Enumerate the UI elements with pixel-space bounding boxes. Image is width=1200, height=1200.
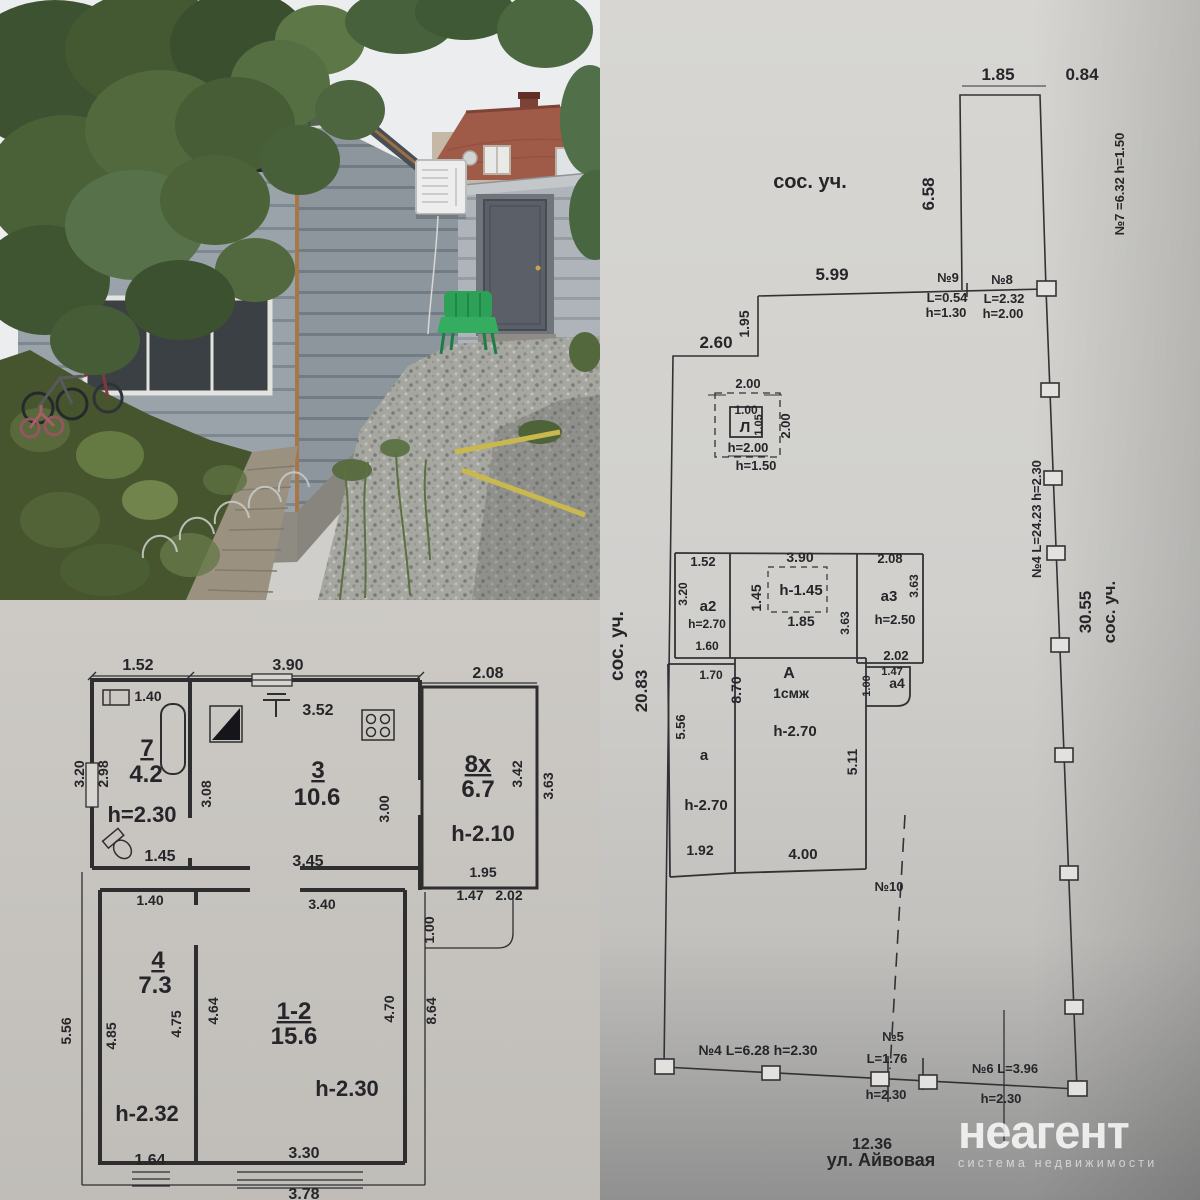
plan-label: h-2.30	[315, 1076, 379, 1101]
plan-label: a	[700, 747, 709, 764]
plan-label: 15.6	[271, 1023, 318, 1050]
door-handle	[536, 266, 541, 271]
plan-label: 3.42	[509, 760, 525, 787]
plan-label: h-2.70	[684, 797, 727, 814]
plan-label: №9	[937, 270, 959, 285]
plan-label: 3.08	[198, 780, 214, 807]
plan-label: 4.00	[788, 846, 817, 863]
plan-label: №8	[991, 272, 1013, 287]
watermark-tagline: система недвижимости	[958, 1157, 1194, 1170]
plan-label: h=2.00	[983, 306, 1024, 321]
plan-label: h=1.50	[736, 458, 777, 473]
plan-label: 3.78	[288, 1186, 319, 1200]
plan-label: 4.64	[205, 997, 221, 1024]
plan-label: №5	[882, 1029, 904, 1044]
plan-label: 5.99	[815, 265, 848, 284]
plan-label: 4.75	[168, 1010, 184, 1037]
plan-label: 2.98	[95, 760, 111, 787]
plan-label: L=1.76	[867, 1051, 908, 1066]
plan-label: 1.52	[690, 554, 715, 569]
plan-label: 1.00	[861, 675, 873, 696]
plan-label: 4.70	[381, 995, 397, 1022]
plan-label: ул. Айвовая	[827, 1150, 935, 1170]
room-number-label: 4	[151, 947, 165, 974]
plan-label: a2	[700, 598, 717, 615]
plan-label: 2.08	[472, 665, 503, 682]
plan-label: 1.95	[469, 864, 496, 880]
plan-label: 8.70	[728, 676, 744, 703]
plan-label: 3.63	[540, 772, 556, 799]
plan-label: h=2.30	[866, 1087, 907, 1102]
plan-label: 1.64	[134, 1152, 165, 1169]
plan-label: 8.64	[423, 997, 439, 1024]
plan-label: 1.45	[748, 584, 764, 611]
room-number-label: 3	[311, 757, 324, 784]
plan-label: 2.60	[699, 333, 732, 352]
plan-label: 3.63	[838, 611, 852, 635]
plan-label: 1.00	[421, 916, 437, 943]
plan-label: №7 =6.32 h=1.50	[1112, 133, 1127, 236]
plan-label: 1.40	[136, 892, 163, 908]
plan-label: L=0.54	[927, 290, 969, 305]
plan-label: 5.56	[673, 714, 688, 739]
plan-label: h-2.10	[451, 821, 515, 846]
plan-label: 2.02	[883, 648, 908, 663]
plan-label: a4	[889, 675, 905, 691]
plan-label: 6.58	[919, 177, 938, 210]
plan-label: h-2.32	[115, 1101, 179, 1126]
site-plan-drawing: сос. уч.1.850.846.58№7 =6.32 h=1.505.99№…	[600, 0, 1200, 1200]
plan-label: 3.30	[288, 1145, 319, 1162]
plan-label: 1.92	[686, 842, 713, 858]
plan-label: 4.2	[129, 761, 162, 788]
plan-label: 1.95	[736, 310, 752, 337]
plan-label: 0.84	[1065, 65, 1099, 84]
room-number-label: 7	[140, 735, 153, 762]
floor-plan: 1.523.902.081.403.523.202.9874.2h=2.301.…	[0, 600, 600, 1200]
room-number-label: 8x	[465, 751, 492, 778]
plan-label: h=2.00	[728, 440, 769, 455]
plan-label: А	[783, 665, 795, 682]
plan-label: h-2.70	[773, 723, 816, 740]
plan-label: h=2.70	[688, 617, 726, 631]
watermark-brand: неагент	[958, 1108, 1194, 1155]
plan-label: 3.90	[272, 657, 303, 674]
plan-label: 1.85	[981, 65, 1014, 84]
plan-label: 2.02	[495, 887, 522, 903]
plan-label: 1.70	[699, 668, 723, 682]
plan-label: 30.55	[1076, 591, 1095, 634]
plan-label: L=2.32	[984, 291, 1025, 306]
plan-label: 5.11	[844, 749, 860, 776]
plan-label: h=2.30	[107, 802, 176, 827]
plan-label: №6 L=3.96	[972, 1061, 1038, 1076]
plan-label: 3.00	[376, 795, 392, 822]
plan-label: 3.52	[302, 702, 333, 719]
plan-label: сос. уч.	[773, 171, 847, 193]
plan-label: h=2.30	[981, 1091, 1022, 1106]
plan-label: 1.47	[456, 887, 483, 903]
plan-label: 7.3	[138, 972, 171, 999]
plan-label: h-1.45	[779, 582, 822, 599]
plan-label: 1смж	[773, 685, 810, 701]
plan-label: h=1.30	[926, 305, 967, 320]
site-plan: сос. уч.1.850.846.58№7 =6.32 h=1.505.99№…	[600, 0, 1200, 1200]
plan-label: 3.20	[71, 760, 87, 787]
plan-label: 2.08	[877, 551, 902, 566]
watermark: неагент система недвижимости	[958, 1108, 1194, 1170]
plan-label: 3.20	[676, 582, 690, 606]
plan-label: №4 L=24.23 h=2.30	[1029, 460, 1044, 578]
plan-label: 1.40	[134, 688, 161, 704]
plan-label: №4 L=6.28 h=2.30	[698, 1042, 817, 1058]
plan-label: h=2.50	[875, 612, 916, 627]
plan-label: 2.00	[735, 376, 760, 391]
floor-plan-drawing: 1.523.902.081.403.523.202.9874.2h=2.301.…	[0, 600, 600, 1200]
real-estate-listing-collage: 1.523.902.081.403.523.202.9874.2h=2.301.…	[0, 0, 1200, 1200]
plan-label: 5.56	[58, 1017, 74, 1044]
plan-label: 2.00	[778, 413, 793, 438]
plan-label: 3.63	[907, 574, 921, 598]
property-photo	[0, 0, 600, 600]
plan-label: 1.45	[144, 848, 175, 865]
plan-label: 1.85	[787, 613, 814, 629]
plan-label: сос. уч.	[607, 611, 628, 681]
plan-label: Л	[740, 419, 751, 436]
plan-label: 1.60	[695, 639, 719, 653]
plan-label: 3.45	[292, 853, 323, 870]
plan-label: 3.90	[786, 549, 813, 565]
plan-label: 4.85	[103, 1022, 119, 1049]
house-photo-illustration	[0, 0, 600, 600]
plan-label: сос. уч.	[1100, 581, 1119, 644]
plan-label: 1.05	[753, 414, 765, 435]
plan-label: 10.6	[294, 784, 341, 811]
plan-label: 20.83	[632, 670, 651, 713]
entry-door	[484, 200, 546, 330]
room-number-label: 1-2	[277, 998, 312, 1025]
plan-label: 6.7	[461, 776, 494, 803]
plan-label: №10	[875, 879, 904, 894]
plan-label: 3.40	[308, 896, 335, 912]
plan-label: 1.52	[122, 657, 153, 674]
plan-label: a3	[881, 588, 898, 605]
